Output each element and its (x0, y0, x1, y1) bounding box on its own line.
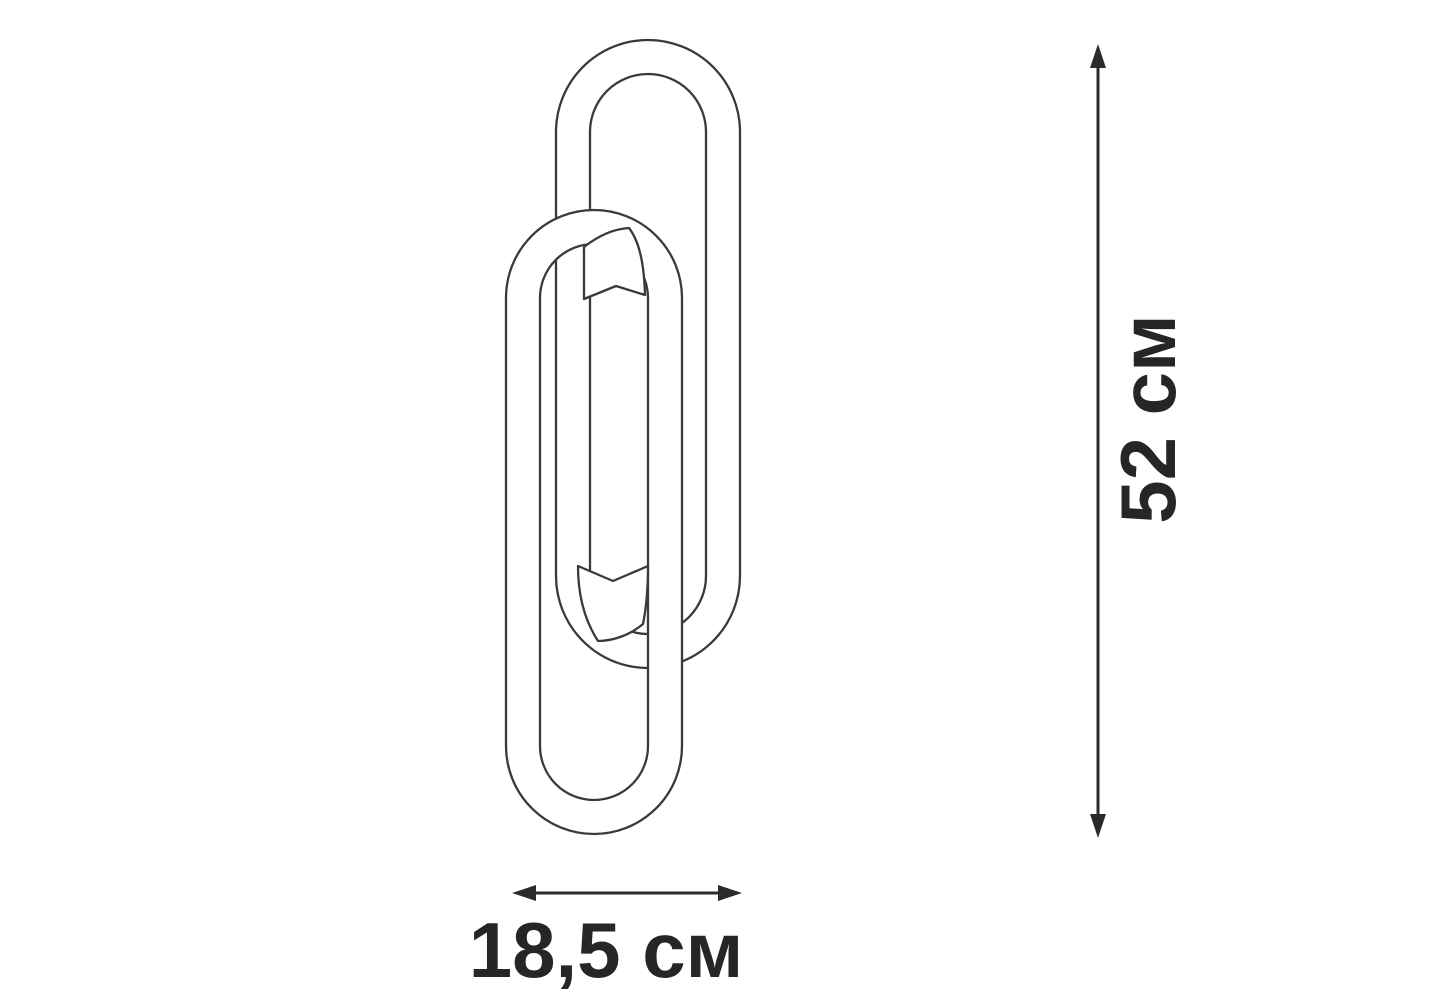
sconce-dimension-diagram: 52 см 18,5 см (0, 0, 1432, 1002)
horizontal-dimension: 18,5 см (469, 885, 744, 994)
vertical-dimension-arrowhead-down-icon (1090, 814, 1106, 838)
horizontal-dimension-arrowhead-right-icon (718, 885, 742, 901)
width-dimension-label: 18,5 см (469, 906, 744, 994)
horizontal-dimension-arrowhead-left-icon (512, 885, 536, 901)
vertical-dimension-arrowhead-up-icon (1090, 44, 1106, 68)
diagram-canvas: 52 см 18,5 см (0, 0, 1432, 1002)
vertical-dimension: 52 см (1090, 44, 1192, 838)
front-ring-outline (506, 210, 682, 834)
height-dimension-label: 52 см (1104, 314, 1192, 524)
